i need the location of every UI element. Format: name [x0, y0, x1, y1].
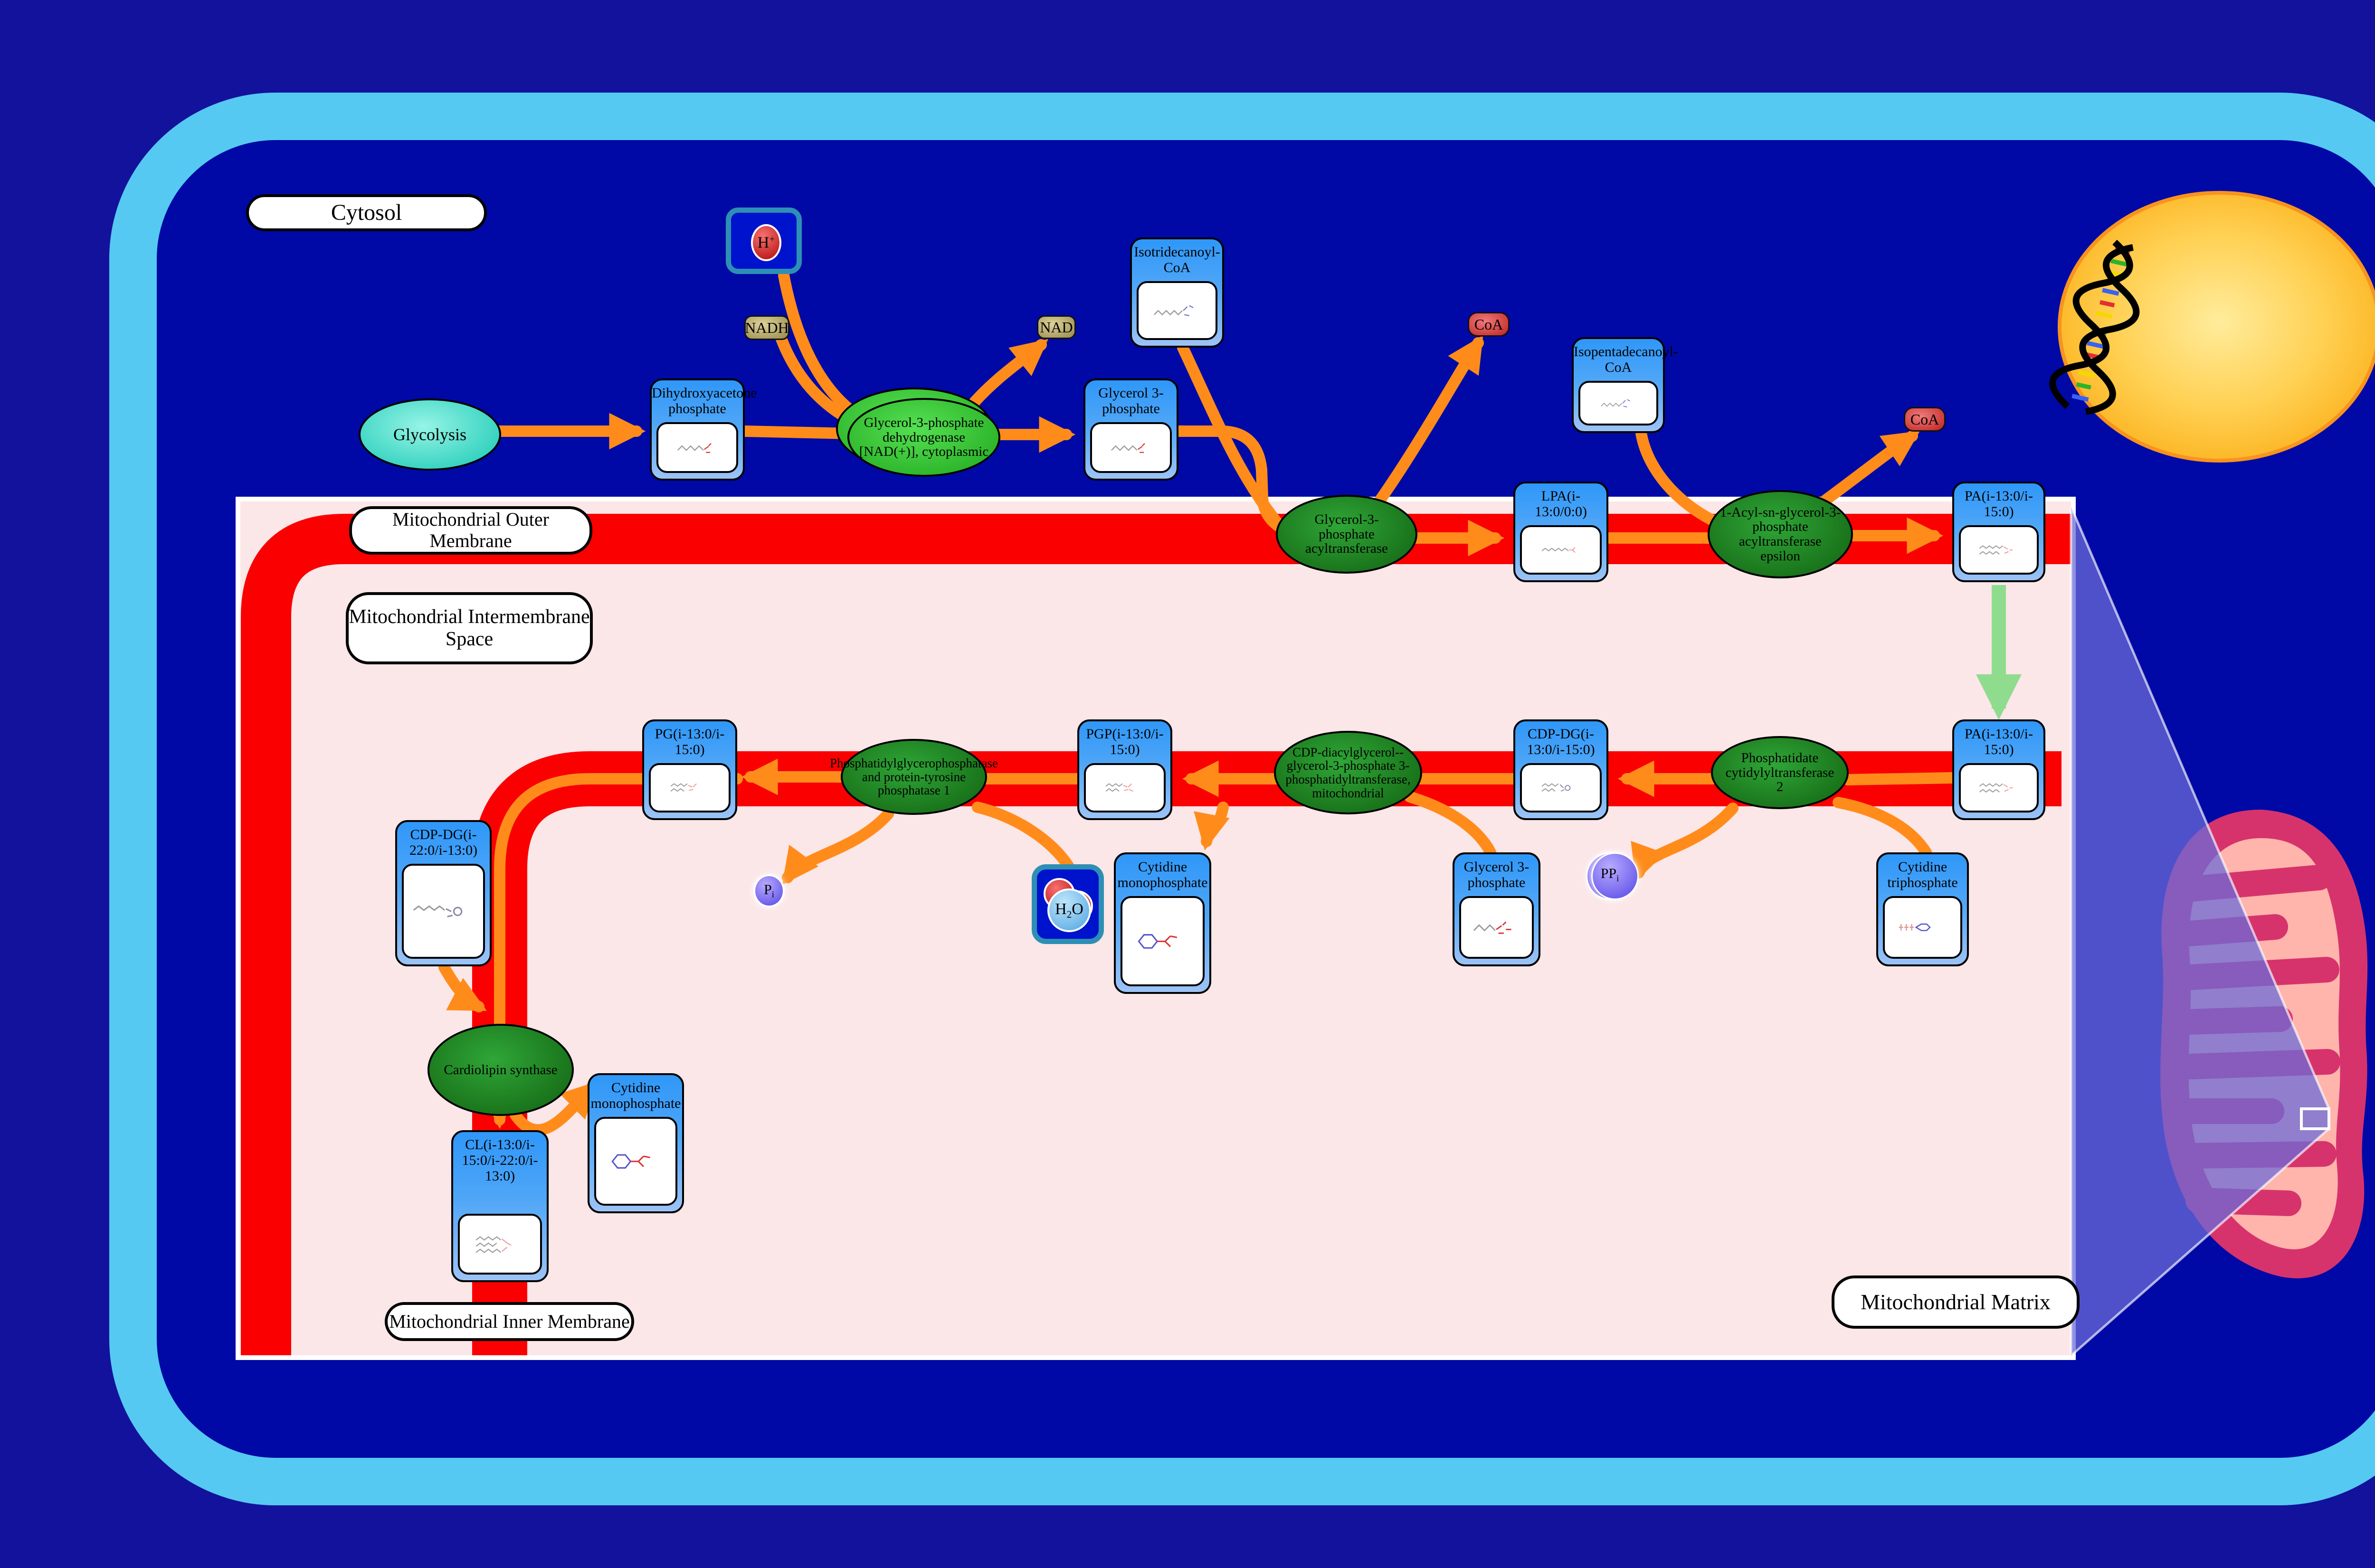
nad-node[interactable]: NAD: [1037, 315, 1076, 339]
molecule-structure-icon: [1093, 779, 1157, 797]
enzyme-gpat[interactable]: Glycerol-3-phosphate acyltransferase: [1276, 495, 1417, 574]
metabolite-pa-inner[interactable]: PA(i-13:0/i-15:0): [1952, 719, 2045, 820]
molecule-structure-icon: [1146, 300, 1209, 321]
pathway-diagram: Cytosol Mitochondrial Outer Membrane Mit…: [0, 0, 2375, 1568]
enzyme-agpat-epsilon[interactable]: 1-Acyl-sn-glycerol-3-phosphate acyltrans…: [1708, 490, 1853, 578]
metabolite-pa-outer[interactable]: PA(i-13:0/i-15:0): [1952, 482, 2045, 582]
enzyme-ptpmt1[interactable]: Phosphatidylglycerophosphatase and prote…: [841, 739, 987, 815]
metabolite-pg[interactable]: PG(i-13:0/i-15:0): [642, 719, 737, 820]
metabolite-cytidine-triphosphate[interactable]: Cytidine triphosphate: [1876, 852, 1969, 966]
molecule-structure-icon: [1891, 916, 1953, 939]
metabolite-cytidine-monophosphate-bottom[interactable]: Cytidine monophosphate: [588, 1073, 684, 1213]
molecule-structure-icon: [1967, 541, 2030, 559]
label-outer-membrane: Mitochondrial Outer Membrane: [349, 506, 592, 555]
metabolite-cardiolipin[interactable]: CL(i-13:0/i-15:0/i-22:0/i-13:0): [451, 1130, 549, 1282]
molecule-structure-icon: [665, 438, 729, 457]
enzyme-cds2[interactable]: Phosphatidate cytidylyltransferase 2: [1711, 736, 1849, 809]
molecule-structure-icon: [658, 779, 722, 797]
metabolite-cdp-dg-13-15[interactable]: CDP-DG(i-13:0/i-15:0): [1513, 719, 1608, 820]
molecule-structure-icon: [603, 1144, 668, 1179]
hydrogen-ion-node[interactable]: H+: [726, 208, 802, 274]
metabolite-cytidine-monophosphate-mid[interactable]: Cytidine monophosphate: [1114, 852, 1211, 994]
nadh-node[interactable]: NADH: [744, 315, 789, 340]
label-inner-membrane: Mitochondrial Inner Membrane: [385, 1302, 634, 1341]
metabolite-lpa[interactable]: LPA(i-13:0/0:0): [1513, 482, 1608, 582]
pyrophosphate-node[interactable]: PPi: [1581, 851, 1639, 898]
metabolite-glycerol-3-phosphate-top[interactable]: Glycerol 3-phosphate: [1083, 378, 1178, 481]
molecule-structure-icon: [1467, 916, 1525, 939]
h-plus-icon: H+: [751, 224, 781, 261]
coa-node-top[interactable]: CoA: [1468, 312, 1510, 337]
molecule-structure-icon: [1529, 779, 1593, 797]
metabolite-cdp-dg-22-13[interactable]: CDP-DG(i-22:0/i-13:0): [395, 820, 492, 966]
enzyme-pgs1[interactable]: CDP-diacylglycerol--glycerol-3-phosphate…: [1274, 731, 1422, 814]
molecule-structure-icon: [1529, 541, 1593, 559]
enzyme-cardiolipin-synthase[interactable]: Cardiolipin synthase: [427, 1024, 574, 1116]
molecule-structure-icon: [1130, 924, 1196, 959]
metabolite-pgp[interactable]: PGP(i-13:0/i-15:0): [1077, 719, 1172, 820]
label-matrix: Mitochondrial Matrix: [1832, 1275, 2080, 1329]
enzyme-gpd-cytoplasmic[interactable]: Glycerol-3-phosphate dehydrogenase [NAD(…: [847, 398, 1000, 477]
process-glycolysis[interactable]: Glycolysis: [359, 398, 501, 471]
metabolite-glycerol-3-phosphate-bottom[interactable]: Glycerol 3-phosphate: [1453, 852, 1540, 966]
metabolite-isotridecanoyl-coa[interactable]: Isotridecanoyl-CoA: [1130, 237, 1224, 348]
coa-node-right[interactable]: CoA: [1904, 407, 1946, 432]
water-node[interactable]: H2O: [1032, 864, 1104, 944]
molecule-structure-icon: [411, 893, 476, 930]
label-cytosol: Cytosol: [246, 194, 487, 231]
metabolite-isopentadecanoyl-coa[interactable]: Isopentadecanoyl-CoA: [1572, 337, 1665, 433]
molecule-structure-icon: [1967, 779, 2030, 797]
label-intermembrane-space: Mitochondrial Intermembrane Space: [346, 592, 593, 664]
water-molecule-icon: H2O: [1047, 888, 1091, 932]
molecule-structure-icon: [1587, 395, 1649, 411]
molecule-structure-icon: [1099, 438, 1163, 457]
phosphate-node[interactable]: Pi: [753, 874, 785, 907]
molecule-structure-icon: [467, 1233, 533, 1256]
metabolite-dhap[interactable]: Dihydroxyacetone phosphate: [650, 378, 745, 481]
